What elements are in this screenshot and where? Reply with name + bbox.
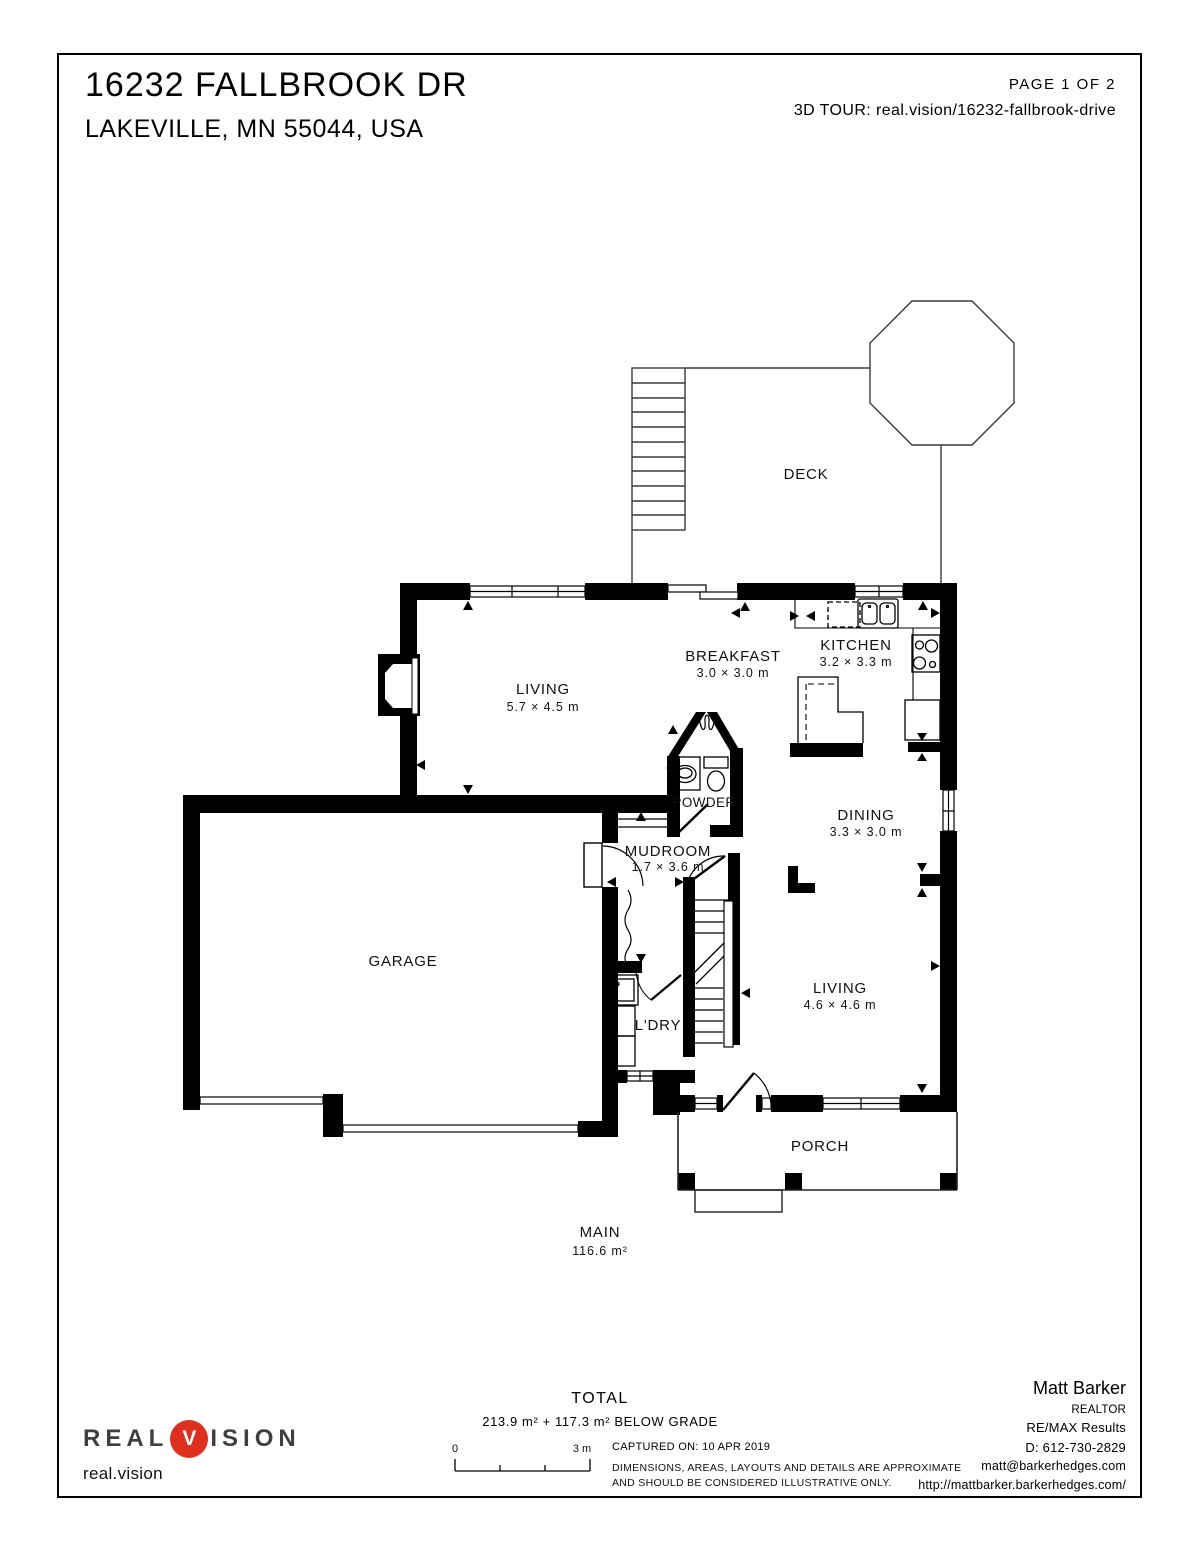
patio-sliding-door [700, 592, 738, 599]
deck-stairs [632, 368, 685, 530]
floor-area: 116.6 m² [572, 1244, 628, 1258]
agent-phone[interactable]: D: 612-730-2829 [918, 1440, 1126, 1455]
room-label-deck: DECK [784, 466, 829, 483]
deck-stair-treads [632, 383, 685, 515]
stove [912, 635, 940, 672]
disclaimer-line-2: AND SHOULD BE CONSIDERED ILLUSTRATIVE ON… [612, 1476, 961, 1491]
scale-bar: 0 3 m [452, 1443, 591, 1471]
room-label-living-main: LIVING [516, 681, 570, 698]
garage-door [343, 1125, 578, 1132]
agent-name: Matt Barker [918, 1378, 1126, 1399]
room-dims-living-family: 4.6 × 4.6 m [804, 998, 877, 1012]
porch-post [678, 1173, 695, 1190]
room-label-powder: POWDER [672, 795, 735, 810]
garage-door [200, 1097, 323, 1104]
stair-handrail [724, 901, 733, 1047]
floorplan-page: 16232 FALLBROOK DR LAKEVILLE, MN 55044, … [0, 0, 1200, 1553]
floorplan-drawing: DECK LIVING 5.7 × 4.5 m BREAKFAST 3.0 × … [0, 0, 1200, 1553]
logo-wordmark: REAL V ISION [83, 1420, 301, 1458]
agent-email[interactable]: matt@barkerhedges.com [918, 1459, 1126, 1473]
room-label-breakfast: BREAKFAST [685, 648, 781, 665]
kitchen-sink [858, 599, 898, 628]
floor-label: MAIN [580, 1224, 621, 1241]
stair-treads-upper [695, 900, 728, 933]
logo-v-icon: V [182, 1427, 196, 1451]
porch-steps [695, 1190, 782, 1212]
room-label-kitchen: KITCHEN [820, 637, 891, 654]
stair-treads-lower [695, 988, 723, 1043]
agent-card: Matt Barker REALTOR RE/MAX Results D: 61… [918, 1378, 1126, 1492]
room-label-dining: DINING [837, 807, 894, 824]
closet-clothes-squiggle [625, 890, 631, 967]
kitchen-island [798, 677, 863, 743]
front-door-leaf [723, 1073, 754, 1110]
capture-meta: CAPTURED ON: 10 APR 2019 DIMENSIONS, ARE… [612, 1441, 961, 1490]
porch-outline [678, 1112, 957, 1212]
garage-entry-door-leaf [584, 843, 602, 887]
logo-circle: V [170, 1420, 208, 1458]
deck-outline [632, 301, 1014, 583]
dishwasher [828, 602, 860, 627]
main-stairs [690, 900, 736, 1047]
toilet-bowl [708, 771, 725, 791]
porch-post [785, 1173, 802, 1190]
room-label-living-family: LIVING [813, 980, 867, 997]
total-label: TOTAL [482, 1390, 717, 1408]
toilet-tank [704, 757, 728, 768]
total-area-block: TOTAL 213.9 m² + 117.3 m² BELOW GRADE [482, 1390, 717, 1429]
room-dims-living-main: 5.7 × 4.5 m [507, 700, 580, 714]
kitchen-fixtures [795, 599, 940, 743]
realvision-logo: REAL V ISION real.vision [83, 1420, 301, 1484]
total-value: 213.9 m² + 117.3 m² BELOW GRADE [482, 1414, 717, 1429]
room-label-mudroom: MUDROOM [625, 843, 711, 860]
scale-start: 0 [452, 1443, 458, 1455]
room-dims-dining: 3.3 × 3.0 m [830, 825, 903, 839]
logo-word-right: ISION [210, 1425, 300, 1453]
room-label-garage: GARAGE [369, 953, 438, 970]
agent-title: REALTOR [918, 1404, 1126, 1416]
logo-domain[interactable]: real.vision [83, 1464, 301, 1484]
room-label-porch: PORCH [791, 1138, 849, 1155]
scale-end: 3 m [573, 1443, 591, 1455]
logo-word-left: REAL [83, 1425, 168, 1453]
room-dims-kitchen: 3.2 × 3.3 m [820, 655, 893, 669]
room-dims-breakfast: 3.0 × 3.0 m [697, 666, 770, 680]
washer [608, 975, 638, 1005]
laundry-door-leaf [651, 975, 681, 1000]
room-dims-mudroom: 1.7 × 3.6 m [632, 860, 705, 874]
disclaimer-line-1: DIMENSIONS, AREAS, LAYOUTS AND DETAILS A… [612, 1461, 961, 1476]
agent-website[interactable]: http://mattbarker.barkerhedges.com/ [918, 1478, 1126, 1492]
room-label-laundry: L'DRY [635, 1017, 682, 1034]
patio-sliding-door [668, 585, 706, 592]
captured-on: CAPTURED ON: 10 APR 2019 [612, 1441, 961, 1453]
agent-company: RE/MAX Results [918, 1420, 1126, 1435]
porch-post [940, 1173, 957, 1190]
deck-octagon [870, 301, 1014, 445]
